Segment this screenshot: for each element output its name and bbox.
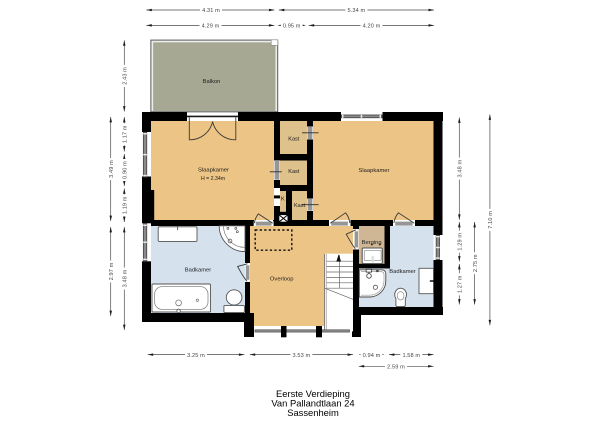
svg-text:1.29 m: 1.29 m (458, 233, 464, 251)
svg-text:Sassenheim: Sassenheim (287, 407, 339, 418)
svg-text:0.95 m: 0.95 m (283, 24, 301, 30)
svg-text:3.53 m: 3.53 m (293, 353, 311, 359)
svg-text:Kast: Kast (288, 136, 299, 142)
svg-text:3.48 m: 3.48 m (458, 160, 464, 178)
svg-text:3.25 m: 3.25 m (187, 353, 205, 359)
svg-text:Overloop: Overloop (270, 276, 294, 282)
svg-text:4.20 m: 4.20 m (363, 24, 381, 30)
svg-text:2.59 m: 2.59 m (387, 365, 405, 371)
svg-text:4.29 m: 4.29 m (202, 24, 220, 30)
svg-text:Slaapkamer: Slaapkamer (359, 168, 390, 174)
svg-text:2.43 m: 2.43 m (123, 67, 129, 85)
svg-text:Badkamer: Badkamer (185, 267, 211, 273)
svg-text:Slaapkamer: Slaapkamer (198, 168, 229, 174)
svg-text:4.31 m: 4.31 m (202, 8, 220, 14)
svg-text:2.97 m: 2.97 m (109, 262, 115, 280)
svg-text:1.17 m: 1.17 m (123, 125, 129, 143)
svg-text:1.19 m: 1.19 m (123, 196, 129, 214)
svg-text:Kast: Kast (294, 203, 305, 209)
svg-text:Berging: Berging (362, 240, 382, 246)
svg-text:K: K (281, 196, 285, 202)
svg-text:2.75 m: 2.75 m (473, 254, 479, 272)
svg-text:0.90 m: 0.90 m (123, 161, 129, 179)
svg-text:Kast: Kast (288, 169, 299, 175)
svg-text:3.49 m: 3.49 m (109, 160, 115, 178)
svg-text:H = 2.34m: H = 2.34m (201, 176, 225, 182)
svg-text:1.58 m: 1.58 m (402, 353, 420, 359)
svg-text:1.27 m: 1.27 m (458, 275, 464, 293)
svg-text:0.94 m: 0.94 m (363, 353, 381, 359)
svg-text:3.48 m: 3.48 m (123, 269, 129, 287)
svg-text:Badkamer: Badkamer (389, 269, 415, 275)
svg-text:5.34 m: 5.34 m (348, 8, 366, 14)
svg-text:7.10 m: 7.10 m (488, 211, 494, 229)
svg-text:Balkon: Balkon (203, 79, 221, 85)
